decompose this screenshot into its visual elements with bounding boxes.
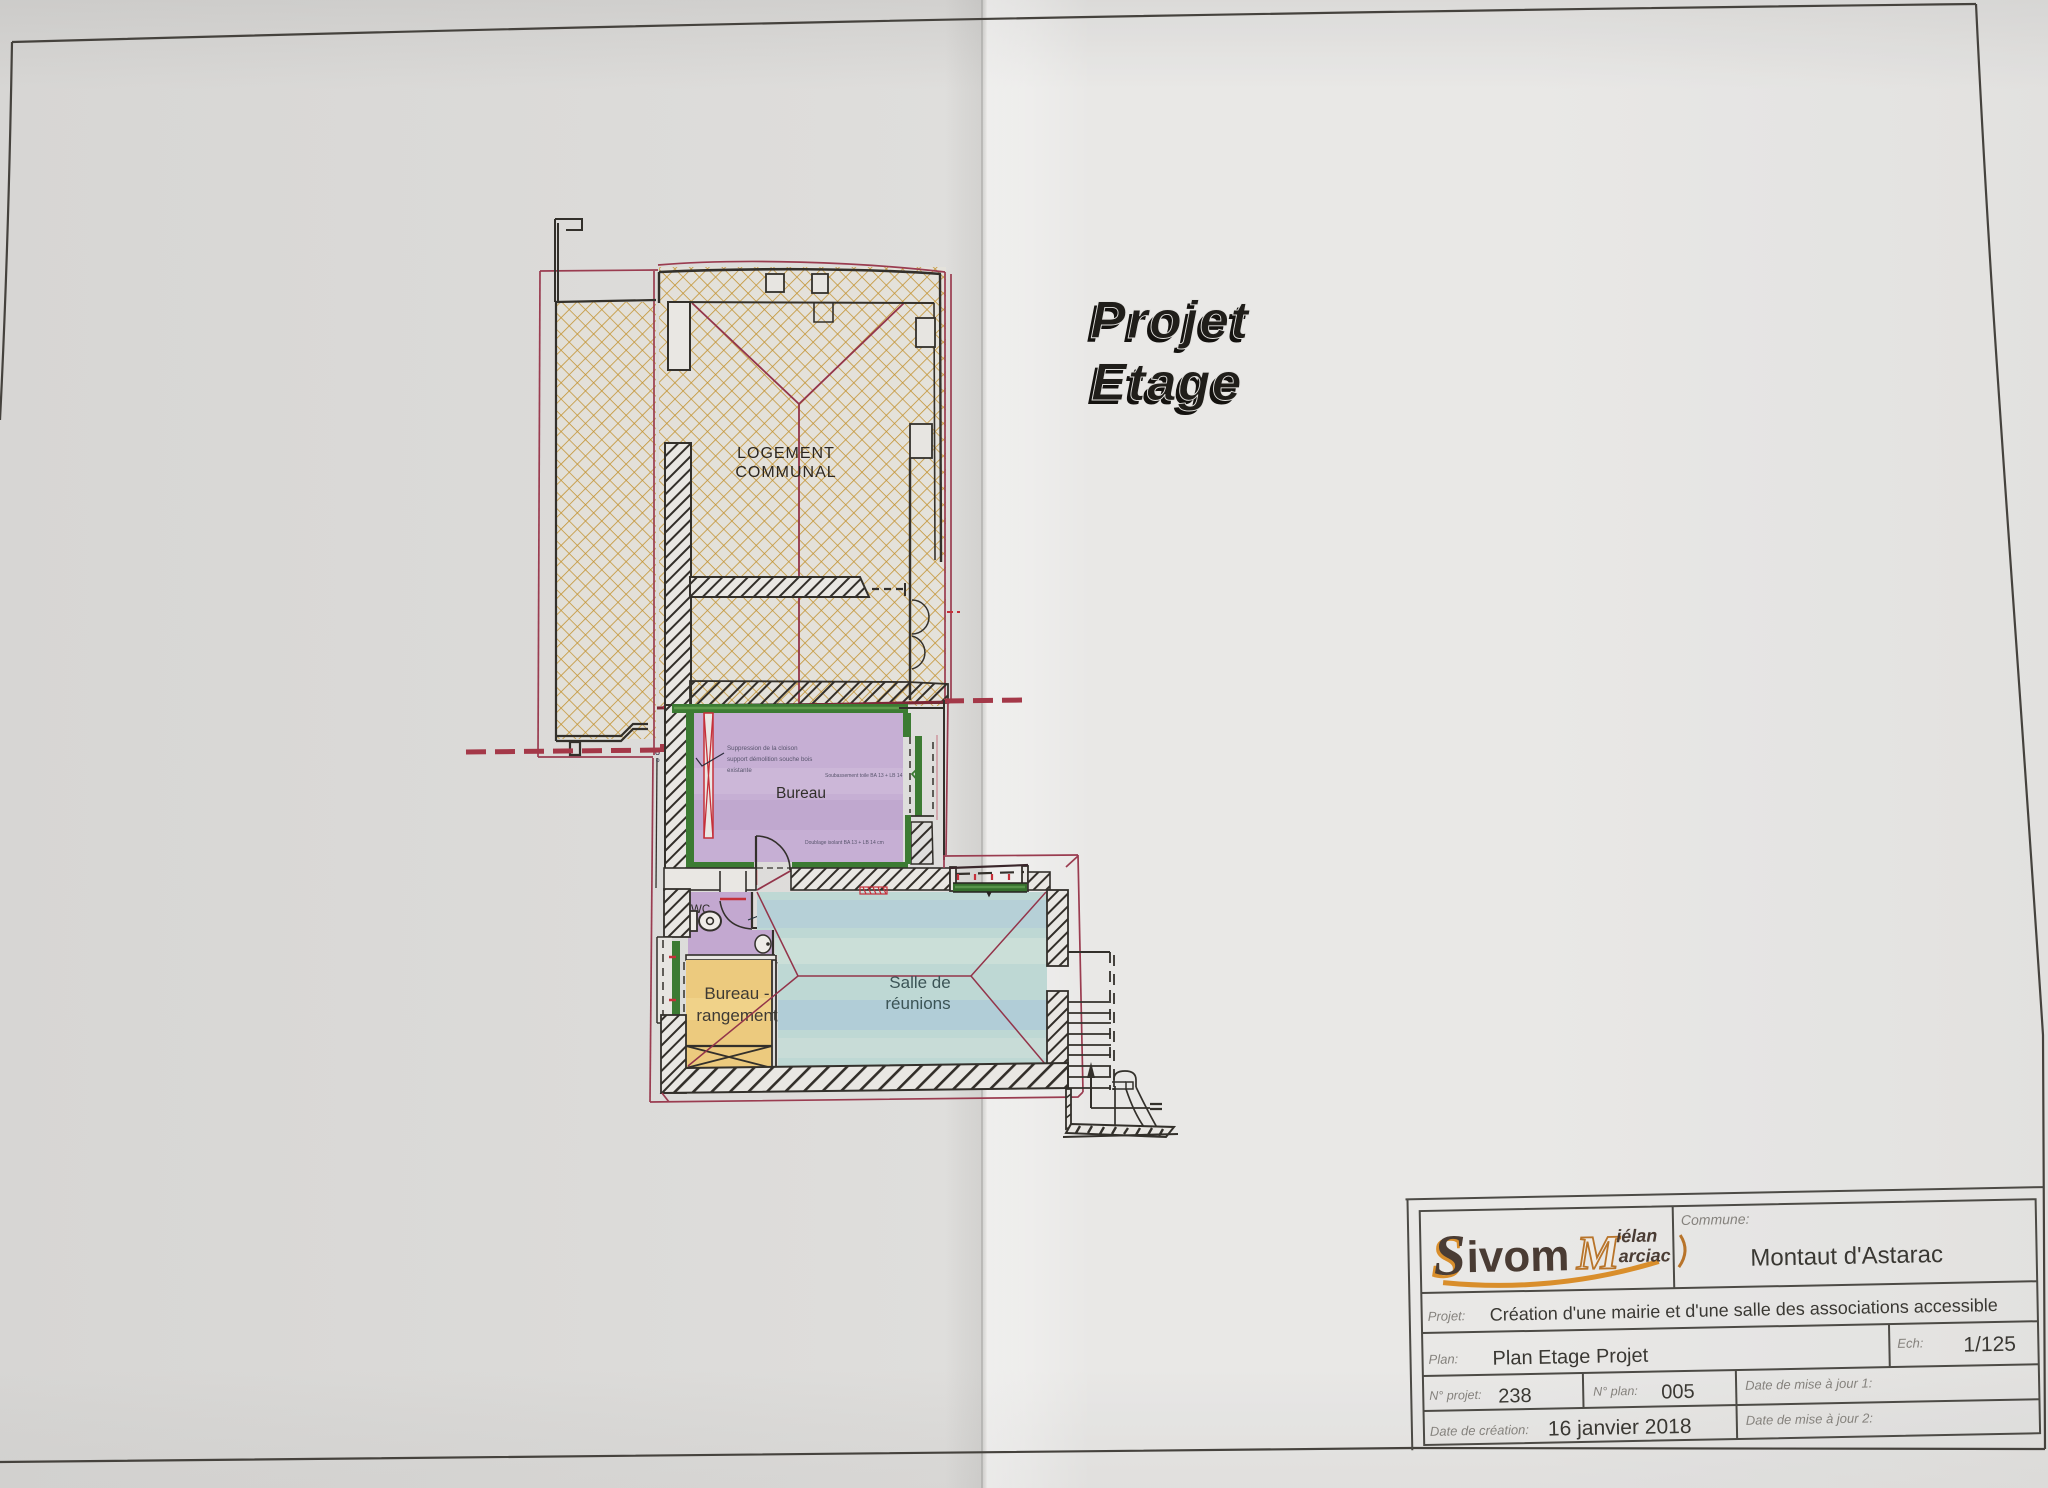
svg-text:existante: existante xyxy=(727,767,752,774)
svg-text:S: S xyxy=(1433,1222,1467,1288)
svg-text:N° projet:: N° projet: xyxy=(1429,1388,1482,1403)
svg-text:Commune:: Commune: xyxy=(1681,1211,1750,1228)
svg-text:Date de mise à jour 1:: Date de mise à jour 1: xyxy=(1745,1375,1873,1392)
svg-text:Date de mise à jour 2:: Date de mise à jour 2: xyxy=(1746,1410,1874,1427)
svg-text:005: 005 xyxy=(1661,1381,1695,1404)
svg-text:Montaut d'Astarac: Montaut d'Astarac xyxy=(1750,1241,1943,1272)
svg-text:Bureau: Bureau xyxy=(776,785,826,802)
svg-text:iélan: iélan xyxy=(1616,1226,1657,1247)
svg-text:COMMUNAL: COMMUNAL xyxy=(735,464,836,481)
svg-text:Bureau -: Bureau - xyxy=(704,984,769,1003)
svg-text:Projet:: Projet: xyxy=(1428,1308,1466,1324)
svg-text:Date de création:: Date de création: xyxy=(1430,1422,1530,1439)
svg-text:Plan Etage Projet: Plan Etage Projet xyxy=(1492,1345,1648,1370)
svg-text:Ech:: Ech: xyxy=(1897,1335,1924,1351)
svg-text:1/125: 1/125 xyxy=(1963,1333,2016,1357)
svg-text:support démolition souche bois: support démolition souche bois xyxy=(727,756,812,763)
svg-text:rangement: rangement xyxy=(696,1006,778,1025)
svg-text:réunions: réunions xyxy=(885,994,950,1013)
svg-text:Plan:: Plan: xyxy=(1428,1351,1458,1367)
svg-text:Doublage isolant BA 13 + LB 14: Doublage isolant BA 13 + LB 14 cm xyxy=(805,840,884,846)
svg-text:Salle de: Salle de xyxy=(889,973,950,992)
svg-text:Suppression de la cloison: Suppression de la cloison xyxy=(727,745,798,752)
svg-text:o: o xyxy=(656,757,660,764)
svg-text:238: 238 xyxy=(1498,1385,1532,1408)
svg-text:LOGEMENT: LOGEMENT xyxy=(737,445,835,462)
svg-text:arciac: arciac xyxy=(1618,1245,1670,1266)
svg-text:ivom: ivom xyxy=(1466,1231,1570,1282)
svg-text:Soubassement toile BA 13 + LB: Soubassement toile BA 13 + LB 14 xyxy=(825,773,903,779)
svg-text:M: M xyxy=(1575,1226,1622,1280)
svg-text:N° plan:: N° plan: xyxy=(1593,1384,1638,1399)
svg-text:16 janvier 2018: 16 janvier 2018 xyxy=(1548,1415,1692,1441)
svg-text:Etage: Etage xyxy=(1091,353,1243,412)
svg-text:Projet: Projet xyxy=(1090,291,1250,350)
